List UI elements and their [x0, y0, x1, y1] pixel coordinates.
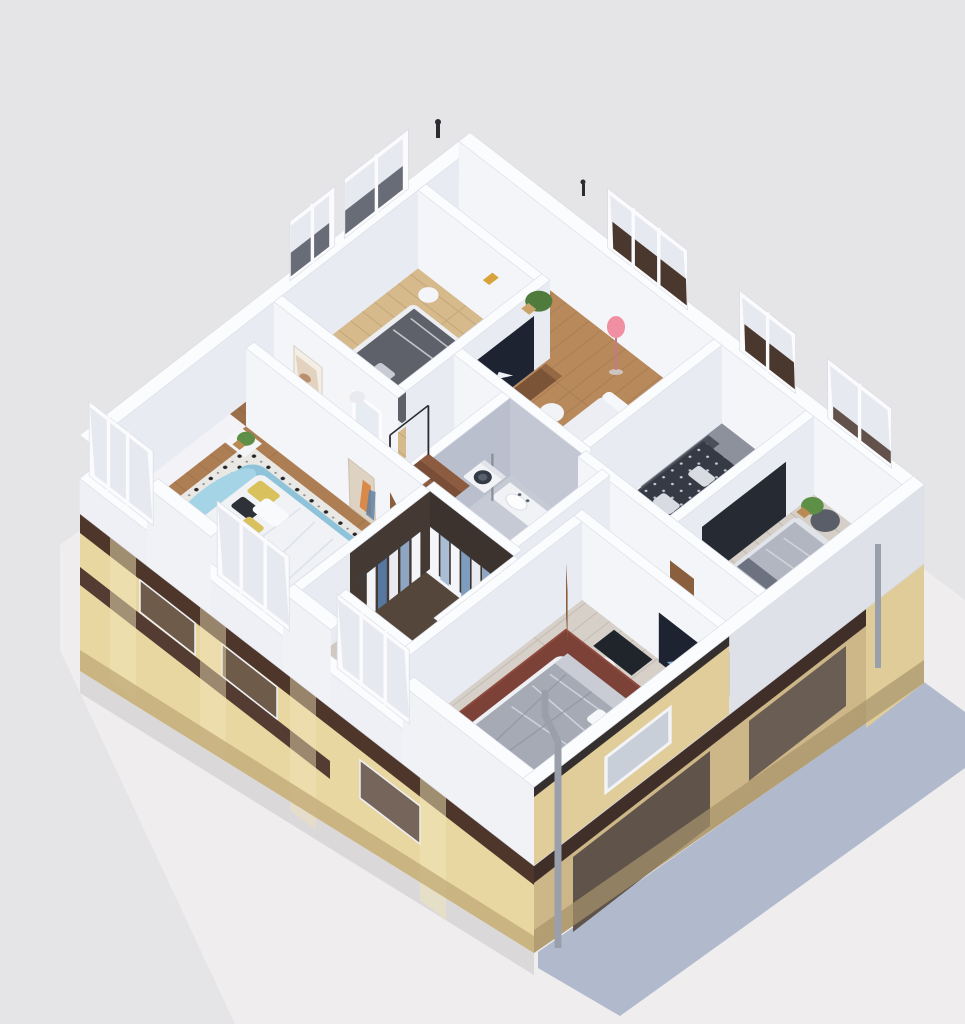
floorplan-3d-scene	[0, 0, 965, 1024]
render-stage	[0, 0, 965, 1024]
lamp-shade	[607, 316, 625, 338]
pilaster	[420, 777, 446, 920]
